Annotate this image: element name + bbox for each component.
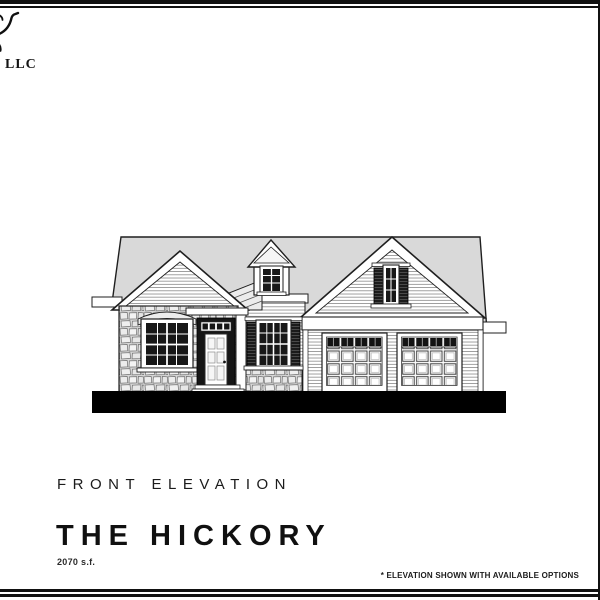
ground-line (92, 391, 506, 413)
center-window-shutter-left (247, 322, 256, 367)
dormer-window (257, 266, 286, 296)
left-picture-window (137, 319, 197, 372)
gable-window (371, 263, 411, 308)
stone-wainscot (246, 370, 302, 392)
garage-frieze-band (302, 317, 483, 330)
porch-header-beam (186, 308, 248, 315)
porch-post (236, 315, 246, 390)
logo-mark-icon (0, 13, 18, 51)
door-knob (223, 361, 226, 364)
gable-window-shutter-left (374, 268, 383, 304)
house-elevation-drawing (0, 0, 600, 600)
center-window-shutter-right (291, 322, 300, 367)
center-window (244, 317, 303, 392)
garage-door-right (397, 333, 462, 392)
door-step-upper (195, 385, 240, 389)
garage-door-left (322, 333, 387, 392)
gable-window-shutter-right (399, 268, 408, 304)
